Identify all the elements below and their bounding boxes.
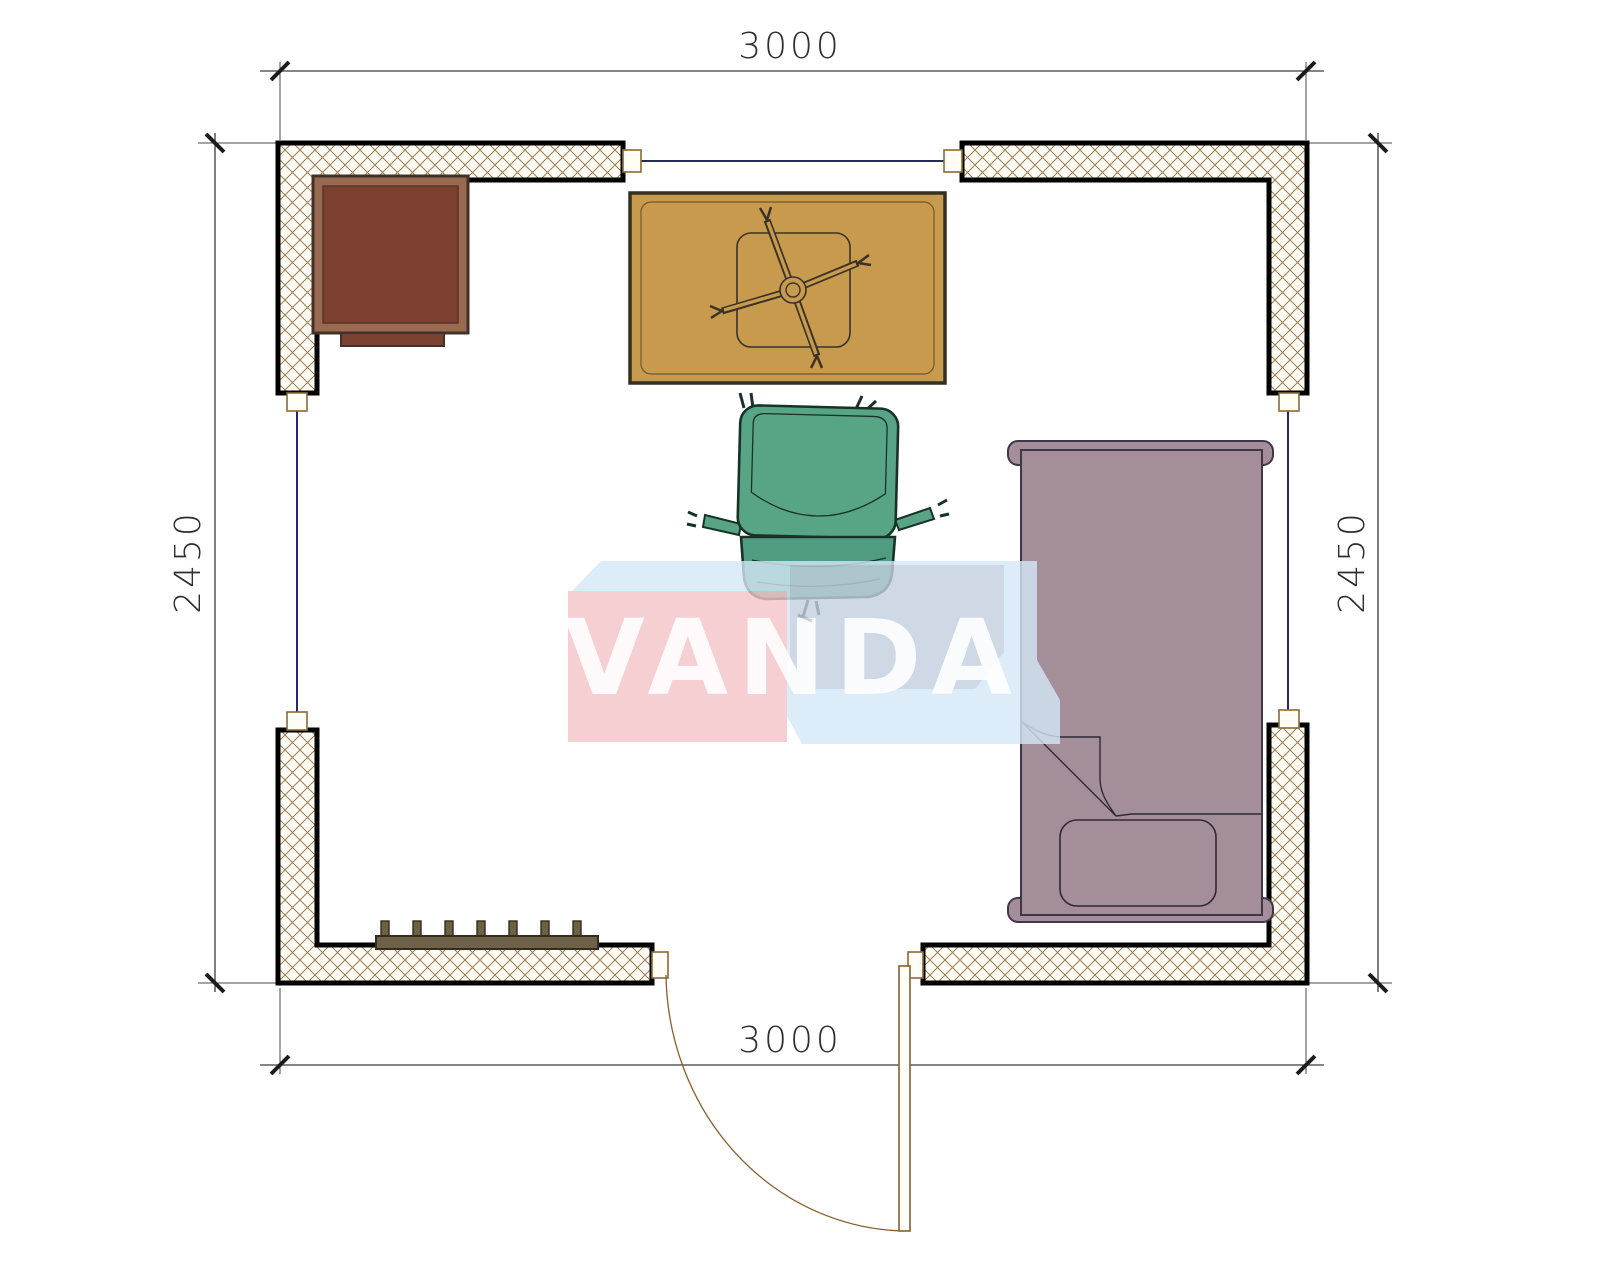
radiator-fin <box>541 921 549 937</box>
pillow <box>1060 820 1216 906</box>
watermark-text: VANDA <box>564 597 1022 719</box>
radiator-fin <box>381 921 389 937</box>
jamb-icon <box>287 393 307 411</box>
radiator-fin <box>477 921 485 937</box>
door-leaf <box>899 966 910 1231</box>
cabinet-body <box>323 186 458 323</box>
dimension-top-label: 3000 <box>738 26 842 67</box>
door <box>666 966 910 1231</box>
radiator-body <box>376 936 598 949</box>
dimension-right-label: 2450 <box>1332 510 1373 614</box>
cabinet <box>313 176 468 346</box>
floor-plan-page: 3000 3000 2450 2450 <box>0 0 1600 1280</box>
desk-table <box>630 193 945 383</box>
radiator-fin <box>509 921 517 937</box>
vanda-watermark: VANDA <box>564 561 1060 744</box>
dimension-right: 2450 <box>1307 133 1392 992</box>
jamb-icon <box>1279 393 1299 411</box>
wall-top-right <box>962 143 1307 393</box>
door-swing-arc <box>666 975 904 1231</box>
radiator-fin <box>445 921 453 937</box>
dimension-bottom: 3000 <box>260 988 1324 1074</box>
radiator <box>376 921 598 949</box>
radiator-fin <box>413 921 421 937</box>
jamb-icon <box>623 150 641 172</box>
floor-plan-canvas: 3000 3000 2450 2450 <box>0 0 1600 1280</box>
jamb-icon <box>287 712 307 730</box>
chair-backrest <box>737 405 898 539</box>
radiator-fin <box>573 921 581 937</box>
dimension-left: 2450 <box>168 133 278 992</box>
jamb-icon <box>1279 710 1299 728</box>
dimension-top: 3000 <box>260 26 1324 140</box>
dimension-left-label: 2450 <box>168 510 209 614</box>
dimension-bottom-label: 3000 <box>738 1020 842 1061</box>
cabinet-tray <box>341 333 444 346</box>
jamb-icon <box>944 150 962 172</box>
jamb-icon <box>652 952 668 978</box>
